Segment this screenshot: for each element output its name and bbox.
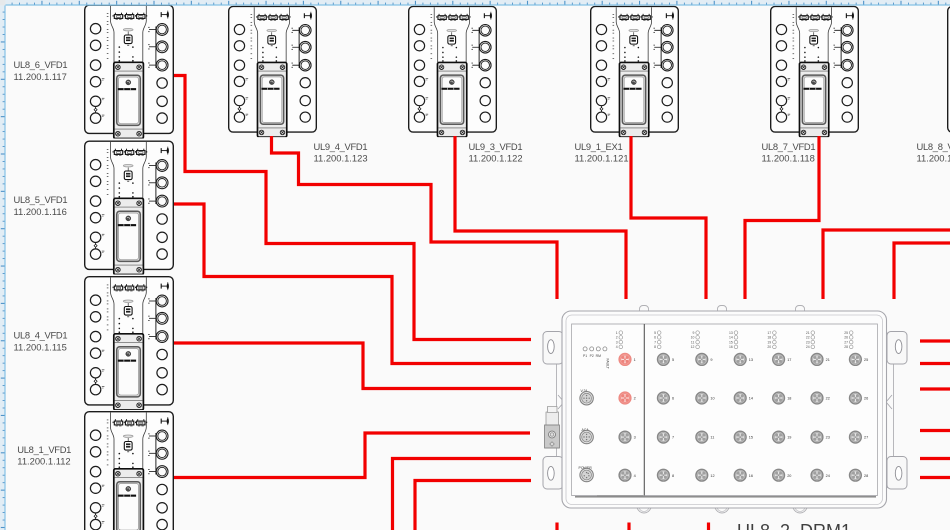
svg-text:15: 15 — [749, 436, 753, 440]
svg-text:20: 20 — [787, 474, 791, 478]
svg-text:17: 17 — [767, 331, 771, 335]
svg-text:4: 4 — [634, 474, 636, 478]
svg-text:14: 14 — [749, 397, 753, 401]
svg-text:13: 13 — [749, 358, 753, 362]
svg-text:18: 18 — [767, 336, 771, 340]
svg-text:P1: P1 — [583, 354, 587, 358]
svg-text:19: 19 — [767, 340, 771, 344]
svg-text:11.200.1.115: 11.200.1.115 — [14, 342, 67, 353]
svg-text:27: 27 — [844, 340, 848, 344]
svg-text:23: 23 — [806, 340, 810, 344]
svg-text:UL8_5_VFD1: UL8_5_VFD1 — [14, 194, 68, 205]
svg-text:11.200.1.122: 11.200.1.122 — [469, 153, 523, 164]
svg-text:15: 15 — [729, 340, 733, 344]
svg-text:28: 28 — [864, 474, 868, 478]
svg-text:10: 10 — [710, 397, 714, 401]
svg-text:11.200.1.117: 11.200.1.117 — [14, 71, 67, 82]
svg-text:16: 16 — [749, 474, 753, 478]
svg-text:1: 1 — [634, 358, 636, 362]
svg-text:UL8_1_VFD1: UL8_1_VFD1 — [17, 444, 71, 455]
svg-text:11: 11 — [710, 436, 714, 440]
svg-text:12: 12 — [691, 345, 695, 349]
svg-text:5: 5 — [654, 331, 656, 335]
svg-text:7: 7 — [654, 340, 656, 344]
svg-text:22: 22 — [826, 397, 830, 401]
svg-text:3: 3 — [616, 340, 618, 344]
svg-text:UL9_1_EX1: UL9_1_EX1 — [575, 141, 623, 152]
svg-text:26: 26 — [844, 336, 848, 340]
svg-text:2: 2 — [634, 397, 636, 401]
svg-text:8: 8 — [672, 474, 674, 478]
svg-text:4: 4 — [616, 345, 618, 349]
svg-text:20: 20 — [767, 345, 771, 349]
svg-text:3: 3 — [634, 436, 636, 440]
svg-text:14: 14 — [729, 336, 733, 340]
svg-text:11.200.1.112: 11.200.1.112 — [17, 456, 70, 467]
svg-text:FAULT: FAULT — [605, 359, 609, 369]
svg-text:2: 2 — [616, 336, 618, 340]
svg-text:RM: RM — [596, 354, 601, 358]
svg-text:16: 16 — [729, 345, 733, 349]
svg-text:17: 17 — [787, 358, 791, 362]
svg-text:6: 6 — [672, 397, 674, 401]
svg-text:9: 9 — [693, 331, 695, 335]
svg-text:11.200.1.121: 11.200.1.121 — [575, 153, 629, 164]
svg-text:10: 10 — [691, 336, 695, 340]
svg-text:28: 28 — [844, 345, 848, 349]
svg-text:26: 26 — [864, 397, 868, 401]
svg-text:12: 12 — [710, 474, 714, 478]
svg-text:24: 24 — [826, 474, 830, 478]
svg-text:8: 8 — [654, 345, 656, 349]
svg-text:7: 7 — [672, 436, 674, 440]
svg-text:11.200.1.123: 11.200.1.123 — [314, 153, 368, 164]
svg-text:UL8_2_DRM1: UL8_2_DRM1 — [737, 521, 851, 530]
svg-text:6: 6 — [654, 336, 656, 340]
svg-text:11.200.1.119: 11.200.1.119 — [917, 153, 950, 164]
svg-text:1: 1 — [616, 331, 618, 335]
svg-text:24: 24 — [806, 345, 810, 349]
svg-text:9: 9 — [710, 358, 712, 362]
svg-text:UL8_7_VFD1: UL8_7_VFD1 — [762, 141, 816, 152]
svg-text:P2: P2 — [590, 354, 594, 358]
svg-text:25: 25 — [844, 331, 848, 335]
svg-text:11: 11 — [691, 340, 695, 344]
svg-text:UL8_6_VFD1: UL8_6_VFD1 — [14, 59, 68, 70]
svg-text:19: 19 — [787, 436, 791, 440]
svg-text:11.200.1.116: 11.200.1.116 — [14, 206, 67, 217]
svg-text:5: 5 — [672, 358, 674, 362]
svg-text:UL8_4_VFD1: UL8_4_VFD1 — [14, 330, 68, 341]
svg-text:18: 18 — [787, 397, 791, 401]
svg-text:13: 13 — [729, 331, 733, 335]
svg-text:UL9_3_VFD1: UL9_3_VFD1 — [469, 141, 523, 152]
svg-text:22: 22 — [806, 336, 810, 340]
svg-text:27: 27 — [864, 436, 868, 440]
svg-text:21: 21 — [826, 358, 830, 362]
svg-text:UL8_8_VFD1: UL8_8_VFD1 — [917, 141, 950, 152]
svg-text:23: 23 — [826, 436, 830, 440]
svg-text:11.200.1.118: 11.200.1.118 — [762, 153, 815, 164]
svg-text:UL9_4_VFD1: UL9_4_VFD1 — [314, 141, 368, 152]
svg-text:21: 21 — [806, 331, 810, 335]
svg-text:25: 25 — [864, 358, 868, 362]
